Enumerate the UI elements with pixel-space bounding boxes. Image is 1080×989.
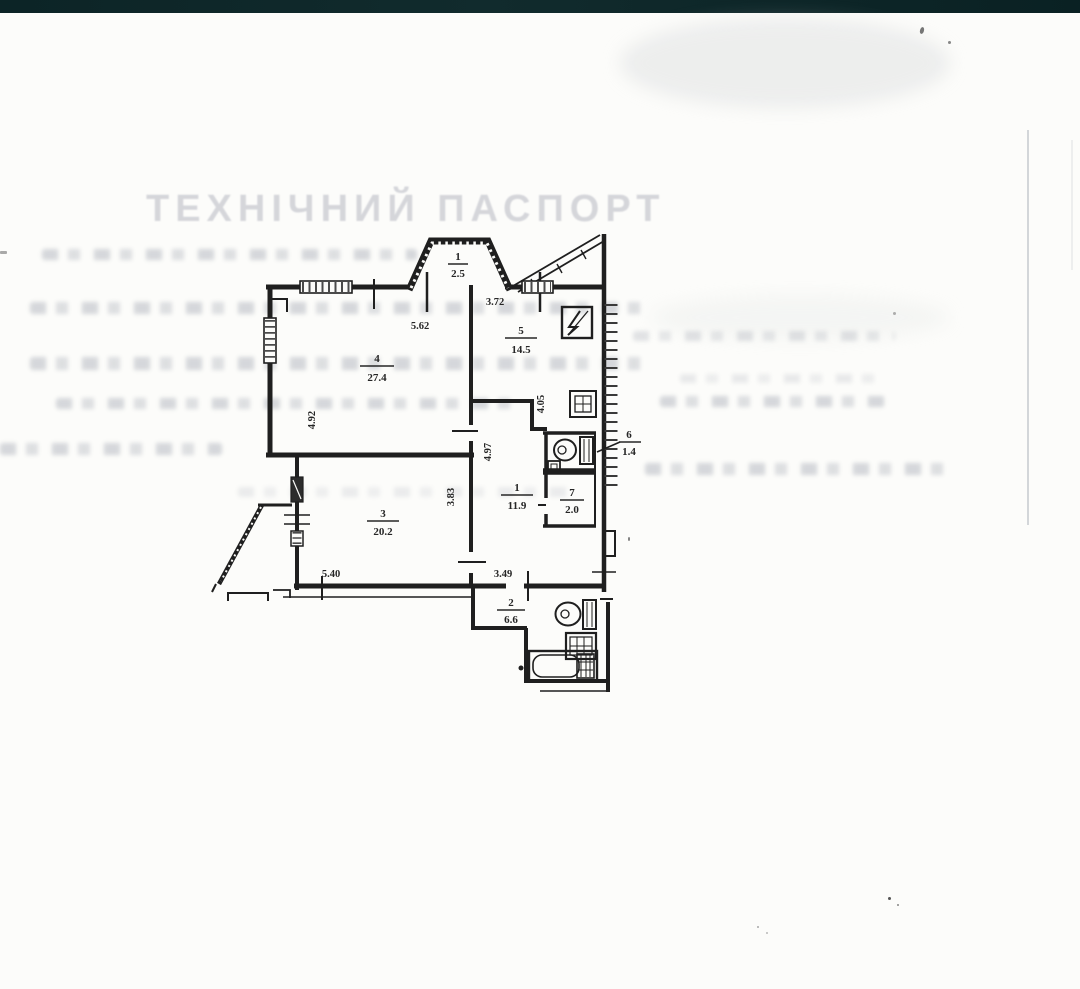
scan-speck <box>0 251 7 254</box>
svg-text:1: 1 <box>514 482 520 494</box>
dim-5-62: 5.62 <box>411 321 429 332</box>
scan-speck <box>888 897 891 900</box>
room-label-hallway: 1 11.9 <box>501 482 533 512</box>
kitchen-sink-icon <box>570 391 596 417</box>
svg-text:2.0: 2.0 <box>565 504 579 516</box>
svg-text:4: 4 <box>374 353 380 365</box>
svg-text:5: 5 <box>518 325 524 337</box>
scan-speck <box>628 537 630 541</box>
room-label-bedroom: 3 20.2 <box>367 508 399 538</box>
svg-text:6: 6 <box>626 429 632 441</box>
dim-5-40: 5.40 <box>322 569 340 580</box>
svg-text:2: 2 <box>508 597 514 609</box>
room-label-closet: 7 2.0 <box>560 487 584 516</box>
walls <box>266 234 616 692</box>
svg-text:7: 7 <box>569 487 575 499</box>
bay-window-wall <box>409 241 510 290</box>
svg-text:27.4: 27.4 <box>367 372 387 384</box>
wc-label-leader-line <box>597 442 620 452</box>
electric-panel-icon <box>562 307 592 338</box>
dim-3-72: 3.72 <box>486 297 504 308</box>
room-label-living: 4 27.4 <box>360 353 394 384</box>
floor-plan: 1 2.5 4 27.4 5 14.5 6 1.4 7 <box>0 0 1080 989</box>
svg-text:2.5: 2.5 <box>451 268 465 280</box>
room-label-wc: 6 1.4 <box>619 429 641 458</box>
dim-4-97: 4.97 <box>483 443 494 461</box>
balcony-left <box>212 505 292 601</box>
svg-text:1.4: 1.4 <box>622 446 636 458</box>
room-label-bathroom: 2 6.6 <box>497 597 525 626</box>
svg-text:20.2: 20.2 <box>373 526 393 538</box>
dimension-labels: 5.62 3.72 4.92 4.05 4.97 3.83 5.40 3.49 <box>307 297 547 580</box>
scan-speck <box>897 904 899 906</box>
scan-speck <box>893 312 896 315</box>
svg-text:6.6: 6.6 <box>504 614 518 626</box>
dim-4-05: 4.05 <box>536 395 547 413</box>
dim-3-83: 3.83 <box>446 488 457 506</box>
toilet-icon <box>556 600 597 629</box>
scan-speck <box>766 932 768 934</box>
toilet-icon <box>548 437 593 473</box>
svg-text:1: 1 <box>455 251 461 263</box>
room-label-bay: 1 2.5 <box>448 251 468 280</box>
scanned-technical-passport-page: ТЕХНІЧНИЙ ПАСПОРТ <box>0 0 1080 989</box>
svg-text:11.9: 11.9 <box>508 500 527 512</box>
scan-speck <box>948 41 951 44</box>
dim-4-92: 4.92 <box>307 411 318 429</box>
svg-text:3: 3 <box>380 508 386 520</box>
scan-speck <box>757 926 759 928</box>
room-label-kitchen: 5 14.5 <box>505 325 537 356</box>
dim-3-49: 3.49 <box>494 569 512 580</box>
svg-text:14.5: 14.5 <box>511 344 531 356</box>
